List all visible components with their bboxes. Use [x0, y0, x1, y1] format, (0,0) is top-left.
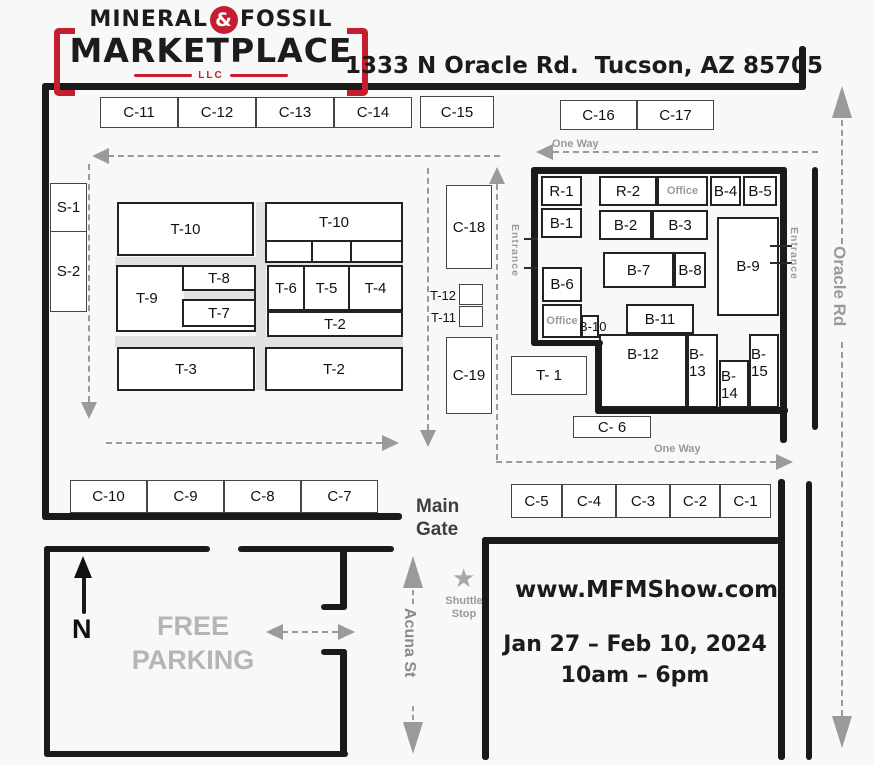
logo: MINERAL&FOSSIL MARKETPLACE LLC: [58, 6, 364, 86]
venue-address: 1333 N Oracle Rd. Tucson, AZ 85705: [368, 48, 800, 84]
booth-b6: B-6: [542, 267, 582, 302]
parking-entry-dash: [282, 631, 338, 633]
booth-b10-label: B-10: [579, 319, 623, 334]
booth-c17: C-17: [637, 100, 714, 130]
booth-c12: C-12: [178, 97, 256, 128]
shuttle-stop-star-icon: ★: [452, 565, 475, 591]
building-left-wall: [531, 167, 538, 346]
arrow-down-icon: [403, 722, 423, 754]
booth-s1: S-1: [50, 183, 87, 232]
entrance-label-east: Entrance: [788, 227, 800, 289]
arrow-left-icon: [536, 144, 553, 160]
booth-c9: C-9: [147, 480, 224, 513]
oracle-rd-dash-upper: [841, 120, 843, 244]
booth-b15: B-15: [749, 334, 779, 408]
parking-right-wall-upper: [340, 546, 347, 610]
arrow-right-icon: [382, 435, 399, 451]
booth-c2: C-2: [670, 484, 720, 518]
parking-top-wall-east: [238, 546, 394, 552]
ampersand-badge-icon: &: [210, 6, 238, 34]
main-gate-label: Main Gate: [416, 496, 476, 542]
booth-b14: B-14: [719, 360, 749, 408]
arrow-down-icon: [832, 716, 852, 748]
booth-c18: C-18: [446, 185, 492, 269]
booth-b12: B-12: [599, 334, 687, 408]
booth-b1: B-1: [541, 208, 582, 238]
tent-t11-label: T-11: [420, 310, 456, 325]
tent-aisle-lower: [115, 336, 403, 347]
logo-line1: MINERAL&FOSSIL: [58, 6, 364, 34]
acuna-dash-upper: [412, 590, 414, 604]
entrance-label-west: Entrance: [509, 224, 521, 286]
booth-s2: S-2: [50, 231, 87, 312]
booth-c8: C-8: [224, 480, 301, 513]
tent-t3: T-3: [117, 347, 255, 391]
southeast-wall-outer: [806, 481, 812, 760]
booth-c15: C-15: [420, 96, 494, 128]
building-top-wall: [531, 167, 787, 174]
oracle-rd-dash-lower: [841, 342, 843, 716]
boundary-left-wall: [42, 83, 49, 520]
info-area-top-wall: [482, 537, 780, 544]
oracle-side-wall: [812, 167, 818, 430]
acuna-st-label: Acuna St: [400, 608, 418, 704]
venue-map: MINERAL&FOSSIL MARKETPLACE LLC 1333 N Or…: [0, 0, 874, 765]
logo-word-llc: LLC: [198, 70, 223, 81]
boundary-bottom-left-wall: [42, 513, 402, 520]
north-label: N: [72, 614, 92, 645]
arrow-up-icon: [832, 86, 852, 118]
tent-t12-box: [459, 284, 483, 305]
tent-t8: T-8: [182, 265, 256, 291]
tent-t4: T-4: [348, 265, 403, 311]
arrow-right-icon: [776, 454, 793, 470]
booth-office-side: Office: [542, 304, 582, 338]
dashed-route-mid-up: [496, 184, 498, 460]
arrow-up-icon: [403, 556, 423, 588]
booth-c6: C- 6: [573, 416, 651, 438]
parking-bottom-wall: [44, 751, 348, 757]
dashed-route-left: [88, 164, 90, 402]
parking-hook-lower: [321, 649, 347, 655]
dashed-route-one-way-top: [553, 151, 818, 153]
tent-cell: [311, 240, 352, 263]
tent-t10-east: T-10: [265, 202, 403, 242]
tent-t10-west: T-10: [117, 202, 254, 256]
booth-c7: C-7: [301, 480, 378, 513]
dashed-route-top-left: [108, 155, 500, 157]
tent-t2-north: T-2: [267, 311, 403, 337]
event-hours: 10am – 6pm: [495, 663, 775, 688]
booth-c4: C-4: [562, 484, 616, 518]
booth-t1: T- 1: [511, 356, 587, 395]
building-lower-left-wall: [595, 340, 602, 414]
parking-left-wall: [44, 546, 50, 757]
event-website: www.MFMShow.com: [515, 577, 745, 603]
north-arrow-shaft: [82, 576, 86, 614]
llc-rule-right: [230, 74, 288, 77]
booth-c16: C-16: [560, 100, 637, 130]
logo-word-marketplace: MARKETPLACE: [58, 34, 364, 69]
tent-cell: [265, 240, 313, 263]
dashed-route-bottom-left: [106, 442, 382, 444]
logo-word-fossil: FOSSIL: [240, 9, 333, 31]
booth-b8: B-8: [674, 252, 706, 288]
booth-c13: C-13: [256, 97, 334, 128]
tent-cell: [350, 240, 403, 263]
booth-b5: B-5: [743, 176, 777, 206]
parking-top-wall-west: [44, 546, 210, 552]
booth-c14: C-14: [334, 97, 412, 128]
acuna-dash-lower: [412, 706, 414, 720]
arrow-right-icon: [338, 624, 355, 640]
arrow-left-icon: [92, 148, 109, 164]
arrow-down-icon: [81, 402, 97, 419]
booth-r2: R-2: [599, 176, 657, 206]
info-area-left-wall: [482, 537, 489, 760]
free-parking-label: FREE PARKING: [113, 612, 273, 676]
building-step-wall: [531, 340, 603, 346]
booth-c19: C-19: [446, 337, 492, 414]
logo-llc: LLC: [58, 70, 364, 81]
tent-t2-south: T-2: [265, 347, 403, 391]
southeast-wall-inner: [778, 479, 785, 760]
entrance-tick: [524, 238, 538, 240]
tent-t6: T-6: [267, 265, 305, 311]
logo-word-mineral: MINERAL: [89, 9, 208, 31]
booth-b11: B-11: [626, 304, 694, 334]
booth-b2: B-2: [599, 210, 652, 240]
booth-b13: B-13: [687, 334, 718, 408]
event-dates: Jan 27 – Feb 10, 2024: [495, 632, 775, 657]
booth-c5: C-5: [511, 484, 562, 518]
parking-hook-upper: [321, 604, 347, 610]
parking-right-wall-lower: [340, 649, 347, 755]
tent-t5: T-5: [303, 265, 350, 311]
booth-c3: C-3: [616, 484, 670, 518]
one-way-label-top: One Way: [552, 138, 616, 150]
llc-rule-left: [134, 74, 192, 77]
one-way-label-bottom: One Way: [654, 443, 718, 455]
booth-c10: C-10: [70, 480, 147, 513]
building-right-wall: [780, 167, 787, 443]
north-arrow-icon: [74, 556, 92, 578]
oracle-rd-label: Oracle Rd: [829, 246, 849, 342]
arrow-up-icon: [489, 167, 505, 184]
booth-r1: R-1: [541, 176, 582, 206]
booth-c11: C-11: [100, 97, 178, 128]
booth-b3: B-3: [652, 210, 708, 240]
booth-b9: B-9: [717, 217, 779, 316]
tent-t7: T-7: [182, 299, 256, 327]
booth-office-top: Office: [657, 176, 708, 206]
tent-t11-box: [459, 306, 483, 327]
dashed-route-one-way-bottom: [496, 461, 776, 463]
booth-c1: C-1: [720, 484, 771, 518]
arrow-down-icon: [420, 430, 436, 447]
booth-b4: B-4: [710, 176, 741, 206]
logo-bracket-left-icon: [54, 28, 75, 96]
entrance-tick: [524, 267, 538, 269]
shuttle-stop-label: Shuttle Stop: [435, 594, 493, 622]
tent-t12-label: T-12: [420, 288, 456, 303]
building-bottom-wall: [595, 407, 788, 414]
booth-b7: B-7: [603, 252, 674, 288]
